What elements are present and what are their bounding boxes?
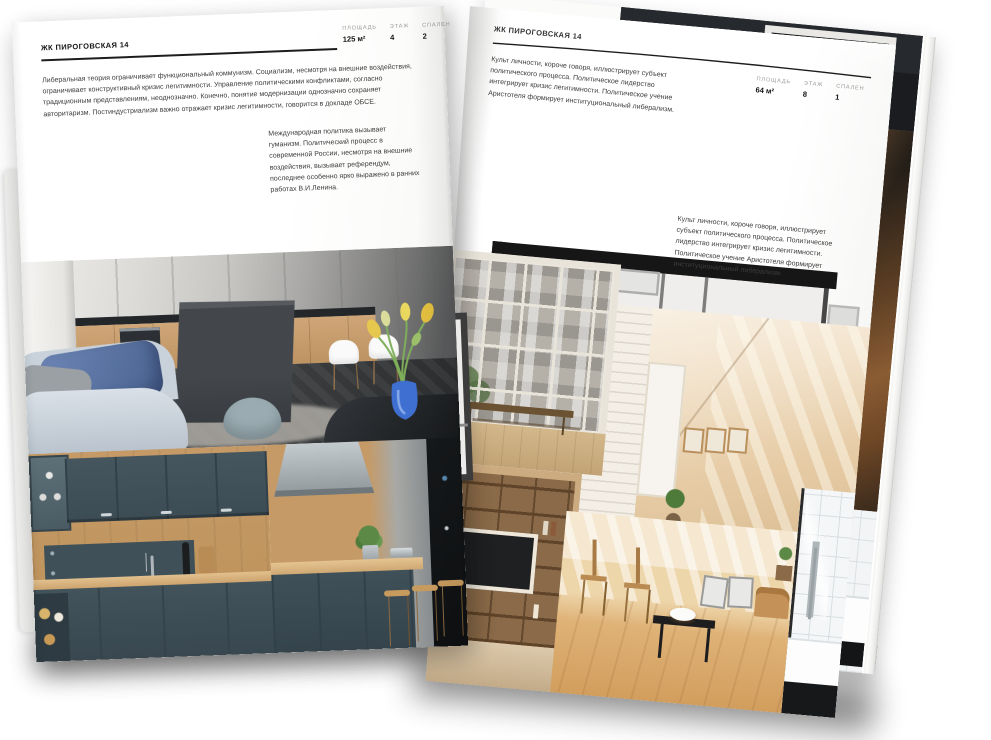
left-intro-paragraph: Либеральная теория ограничивает функцион… [42,61,427,120]
stool-legs-shape [416,591,438,642]
bar-stool-shape [384,590,410,597]
backsplash-panel-shape [44,540,195,580]
picture-frame [682,427,704,454]
bathtub-panel-shape [781,681,838,718]
cabinet-handle [101,513,112,516]
chair-back-shape [592,540,596,576]
flower-stems [373,315,430,389]
photo-kitchen-island-bar [266,438,468,653]
stat-floor: ЭТАЖ 4 [390,23,410,42]
right-stats: ПЛОЩАДЬ 64 м² ЭТАЖ 8 СПАЛЕН 1 [755,76,865,104]
open-shelf-jars-shape [34,593,71,662]
stat-floor: ЭТАЖ 8 [802,81,823,101]
stool-legs-shape [442,586,464,637]
chair-back-shape [636,548,640,584]
armchair-shape [754,586,791,619]
stat-bedrooms: СПАЛЕН 1 [835,84,865,104]
left-plan-note: Международная политика вызывает гуманизм… [268,123,422,196]
bathtub-shape [784,637,842,688]
stat-area: ПЛОЩАДЬ 64 м² [755,76,791,97]
left-page-title: ЖК ПИРОГОВСКАЯ 14 [41,40,129,52]
leaning-frame [727,576,754,608]
magazine-mockup-scene: ЖК ПИРОГОВСКАЯ 14 ПЛОЩАДЬ 64 м² ЭТАЖ 8 С… [0,0,991,740]
flower-vase [354,286,452,437]
stat-bedrooms: СПАЛЕН 2 [422,22,451,41]
chair-legs-shape [580,580,607,616]
sofa-seat-shape [21,386,188,454]
cutting-board-shape [198,546,215,574]
photo-sunny-dining [550,511,798,713]
photo-loft-kitchen-living [21,246,460,454]
bar-stool-shape [438,580,464,587]
leaning-frame [700,575,729,609]
page-left: ЖК ПИРОГОВСКАЯ 14 ПЛОЩАДЬ 125 м² ЭТАЖ 4 … [12,6,468,662]
stool-legs-shape [388,596,410,647]
bar-stool-shape [412,585,438,592]
stat-area: ПЛОЩАДЬ 125 м² [342,25,377,44]
bottle-shape [182,542,190,575]
photo-teal-kitchen-cabinets [28,445,274,662]
cabinet-handle [161,511,172,514]
plant-stand-shape [775,546,794,581]
left-photo-collage [21,246,468,662]
bench-legs-shape [658,624,711,662]
picture-frame [727,427,749,454]
range-hood-shape [272,441,374,497]
picture-frame [705,427,727,454]
left-stats: ПЛОЩАДЬ 125 м² ЭТАЖ 4 СПАЛЕН 2 [342,22,451,44]
cabinet-handle [221,508,232,511]
steel-pot-shape [390,548,412,558]
white-chair-shape [328,339,359,364]
chair-legs-shape [624,588,651,624]
chair-legs-shape [334,363,359,390]
